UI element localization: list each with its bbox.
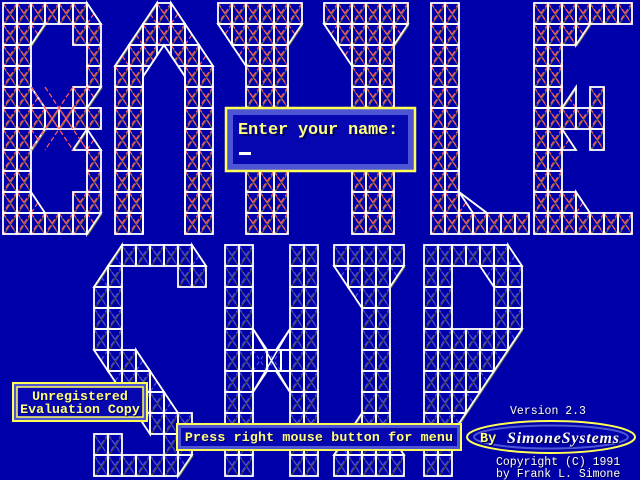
svg-text:SimoneSystems: SimoneSystems xyxy=(507,430,619,447)
svg-text:Enter your name:: Enter your name: xyxy=(238,121,398,140)
svg-text:Version 2.3: Version 2.3 xyxy=(510,405,586,418)
svg-text:Press right mouse button for m: Press right mouse button for menu xyxy=(185,430,453,445)
svg-text:by Frank L. Simone: by Frank L. Simone xyxy=(496,468,620,480)
svg-text:Evaluation Copy: Evaluation Copy xyxy=(20,402,140,417)
svg-text:By: By xyxy=(480,432,496,447)
